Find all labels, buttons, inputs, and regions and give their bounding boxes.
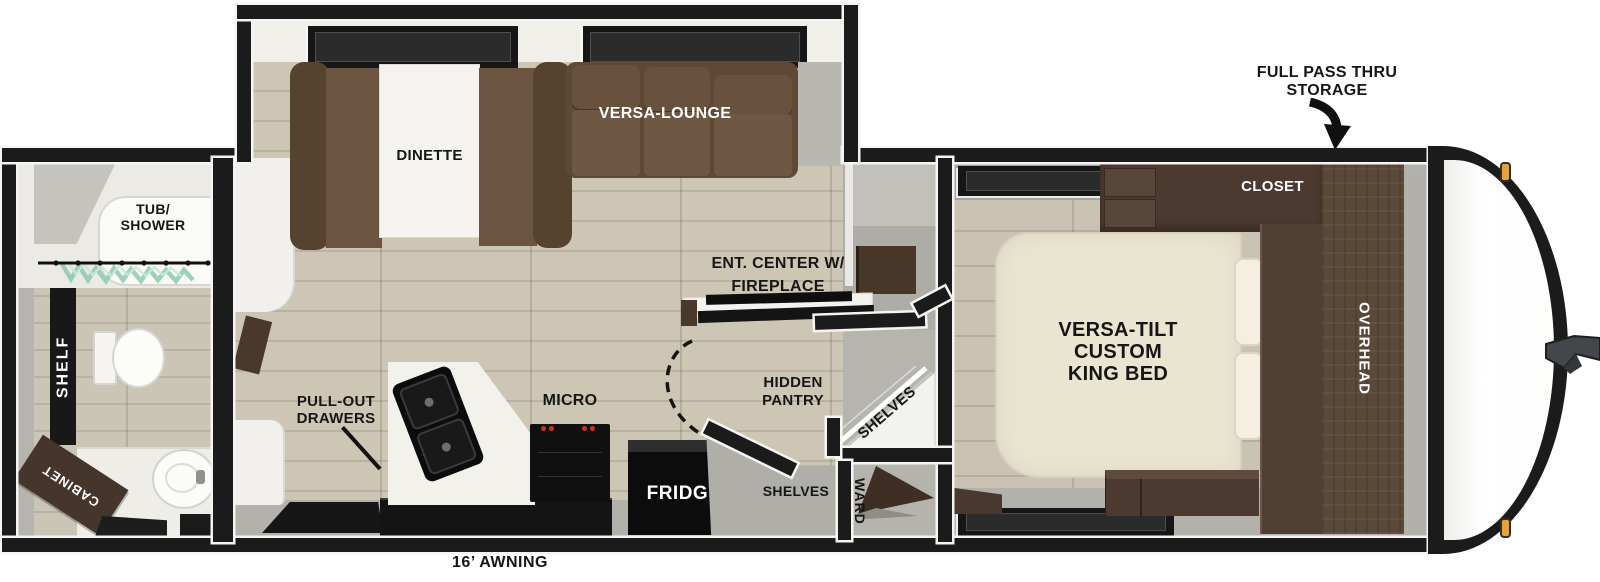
ent-center-end-cabinet [681, 300, 697, 326]
label-shelf: SHELF [54, 335, 72, 397]
bath-door-jamb-upper [233, 158, 295, 312]
ward-west-wall [838, 461, 851, 540]
bath-door-jamb-lower [233, 420, 285, 505]
wall-rear [2, 148, 16, 552]
label-full-pass-thru: FULL PASS THRU STORAGE [1247, 64, 1407, 100]
label-overhead: OVERHEAD [1355, 302, 1372, 395]
slideout-right-wall-face [798, 62, 844, 166]
slideout-window-left [308, 26, 518, 68]
closet-side-panel [1260, 224, 1322, 534]
pantry-line1: HIDDEN [751, 374, 835, 392]
label-shelves-entry: SHELVES [756, 484, 836, 500]
label-awning: 16’ AWNING [418, 554, 582, 572]
passage-nook [845, 164, 936, 226]
bed-foot-cabinet [1105, 470, 1259, 516]
entry-door-swing-arc [640, 325, 750, 445]
slideout-wall-right [844, 5, 858, 162]
drawers-line2: DRAWERS [287, 410, 385, 427]
tub-shower-line1: TUB/ [104, 202, 202, 218]
sofa-seat-cushion-3 [714, 114, 792, 176]
pantry-south-wall [838, 448, 952, 462]
label-hidden-pantry: HIDDEN PANTRY [751, 374, 835, 410]
label-micro: MICRO [538, 392, 602, 410]
stove-grate-line [538, 476, 602, 477]
storage-line1: FULL PASS THRU [1247, 64, 1407, 82]
burner-dot [549, 426, 554, 431]
marker-light-bottom [1500, 518, 1511, 538]
label-ward-wrap: WARD [848, 468, 870, 534]
sofa-back-cushion-1 [572, 65, 640, 109]
toilet-bowl [112, 328, 165, 388]
cabinet-divider [1140, 479, 1142, 516]
bed-line3: KING BED [1038, 363, 1198, 385]
label-versa-lounge: VERSA-LOUNGE [595, 105, 735, 123]
marker-light-top [1500, 162, 1511, 182]
label-tub-shower: TUB/ SHOWER [104, 202, 202, 233]
slideout-wall-left [237, 5, 251, 162]
window-glass [590, 32, 800, 62]
label-shelves-corner-wrap: SHELVES [836, 386, 940, 440]
stove-micro [530, 424, 610, 502]
shower-curtain [28, 248, 218, 290]
fireplace-tv-panel [856, 246, 916, 294]
window-glass [315, 32, 511, 62]
dinette-bench-left-seat [326, 68, 382, 248]
bed-line2: CUSTOM [1038, 341, 1198, 363]
stove-grate-line [538, 452, 602, 453]
label-cabinet: CABINET [40, 461, 102, 508]
bathroom-sink-basin [165, 463, 199, 493]
label-pull-out-drawers: PULL-OUT DRAWERS [287, 393, 385, 427]
slideout-wall-top [237, 5, 858, 19]
dinette-bench-left-back [290, 62, 330, 250]
ent-line2: FIREPLACE [700, 275, 856, 298]
closet-overhead-box-1 [1104, 168, 1156, 197]
bathroom-sink-faucet [196, 470, 205, 484]
dinette-bench-right-seat [479, 68, 537, 246]
bedroom-wall [938, 158, 952, 542]
label-king-bed: VERSA-TILT CUSTOM KING BED [1038, 319, 1198, 385]
label-shelves-corner: SHELVES [856, 383, 921, 442]
burner-dot [590, 426, 595, 431]
ent-line1: ENT. CENTER W/ [700, 252, 856, 275]
label-ward: WARD [851, 478, 867, 525]
label-dinette: DINETTE [379, 148, 480, 165]
burner-dot [541, 426, 546, 431]
hitch-coupler [1538, 326, 1600, 382]
overhead-cabinet: OVERHEAD [1322, 164, 1404, 534]
drawers-line1: PULL-OUT [287, 393, 385, 410]
closet-overhead-box-2 [1104, 199, 1156, 228]
floorplan-canvas: TUB/ SHOWER SHELF CABINET DINETTE [0, 0, 1600, 582]
label-closet: CLOSET [1230, 179, 1315, 196]
tub-shower-line2: SHOWER [104, 218, 202, 234]
label-ent-center: ENT. CENTER W/ FIREPLACE [700, 252, 856, 298]
storage-arrow [1300, 98, 1356, 154]
pantry-line2: PANTRY [751, 392, 835, 410]
bathroom-floor-mat [180, 514, 213, 537]
bed-line1: VERSA-TILT [1038, 319, 1198, 341]
burner-dot [582, 426, 587, 431]
bathroom-wall [213, 158, 233, 542]
bathroom-shelf: SHELF [50, 288, 76, 445]
pantry-west-stub [827, 418, 840, 456]
